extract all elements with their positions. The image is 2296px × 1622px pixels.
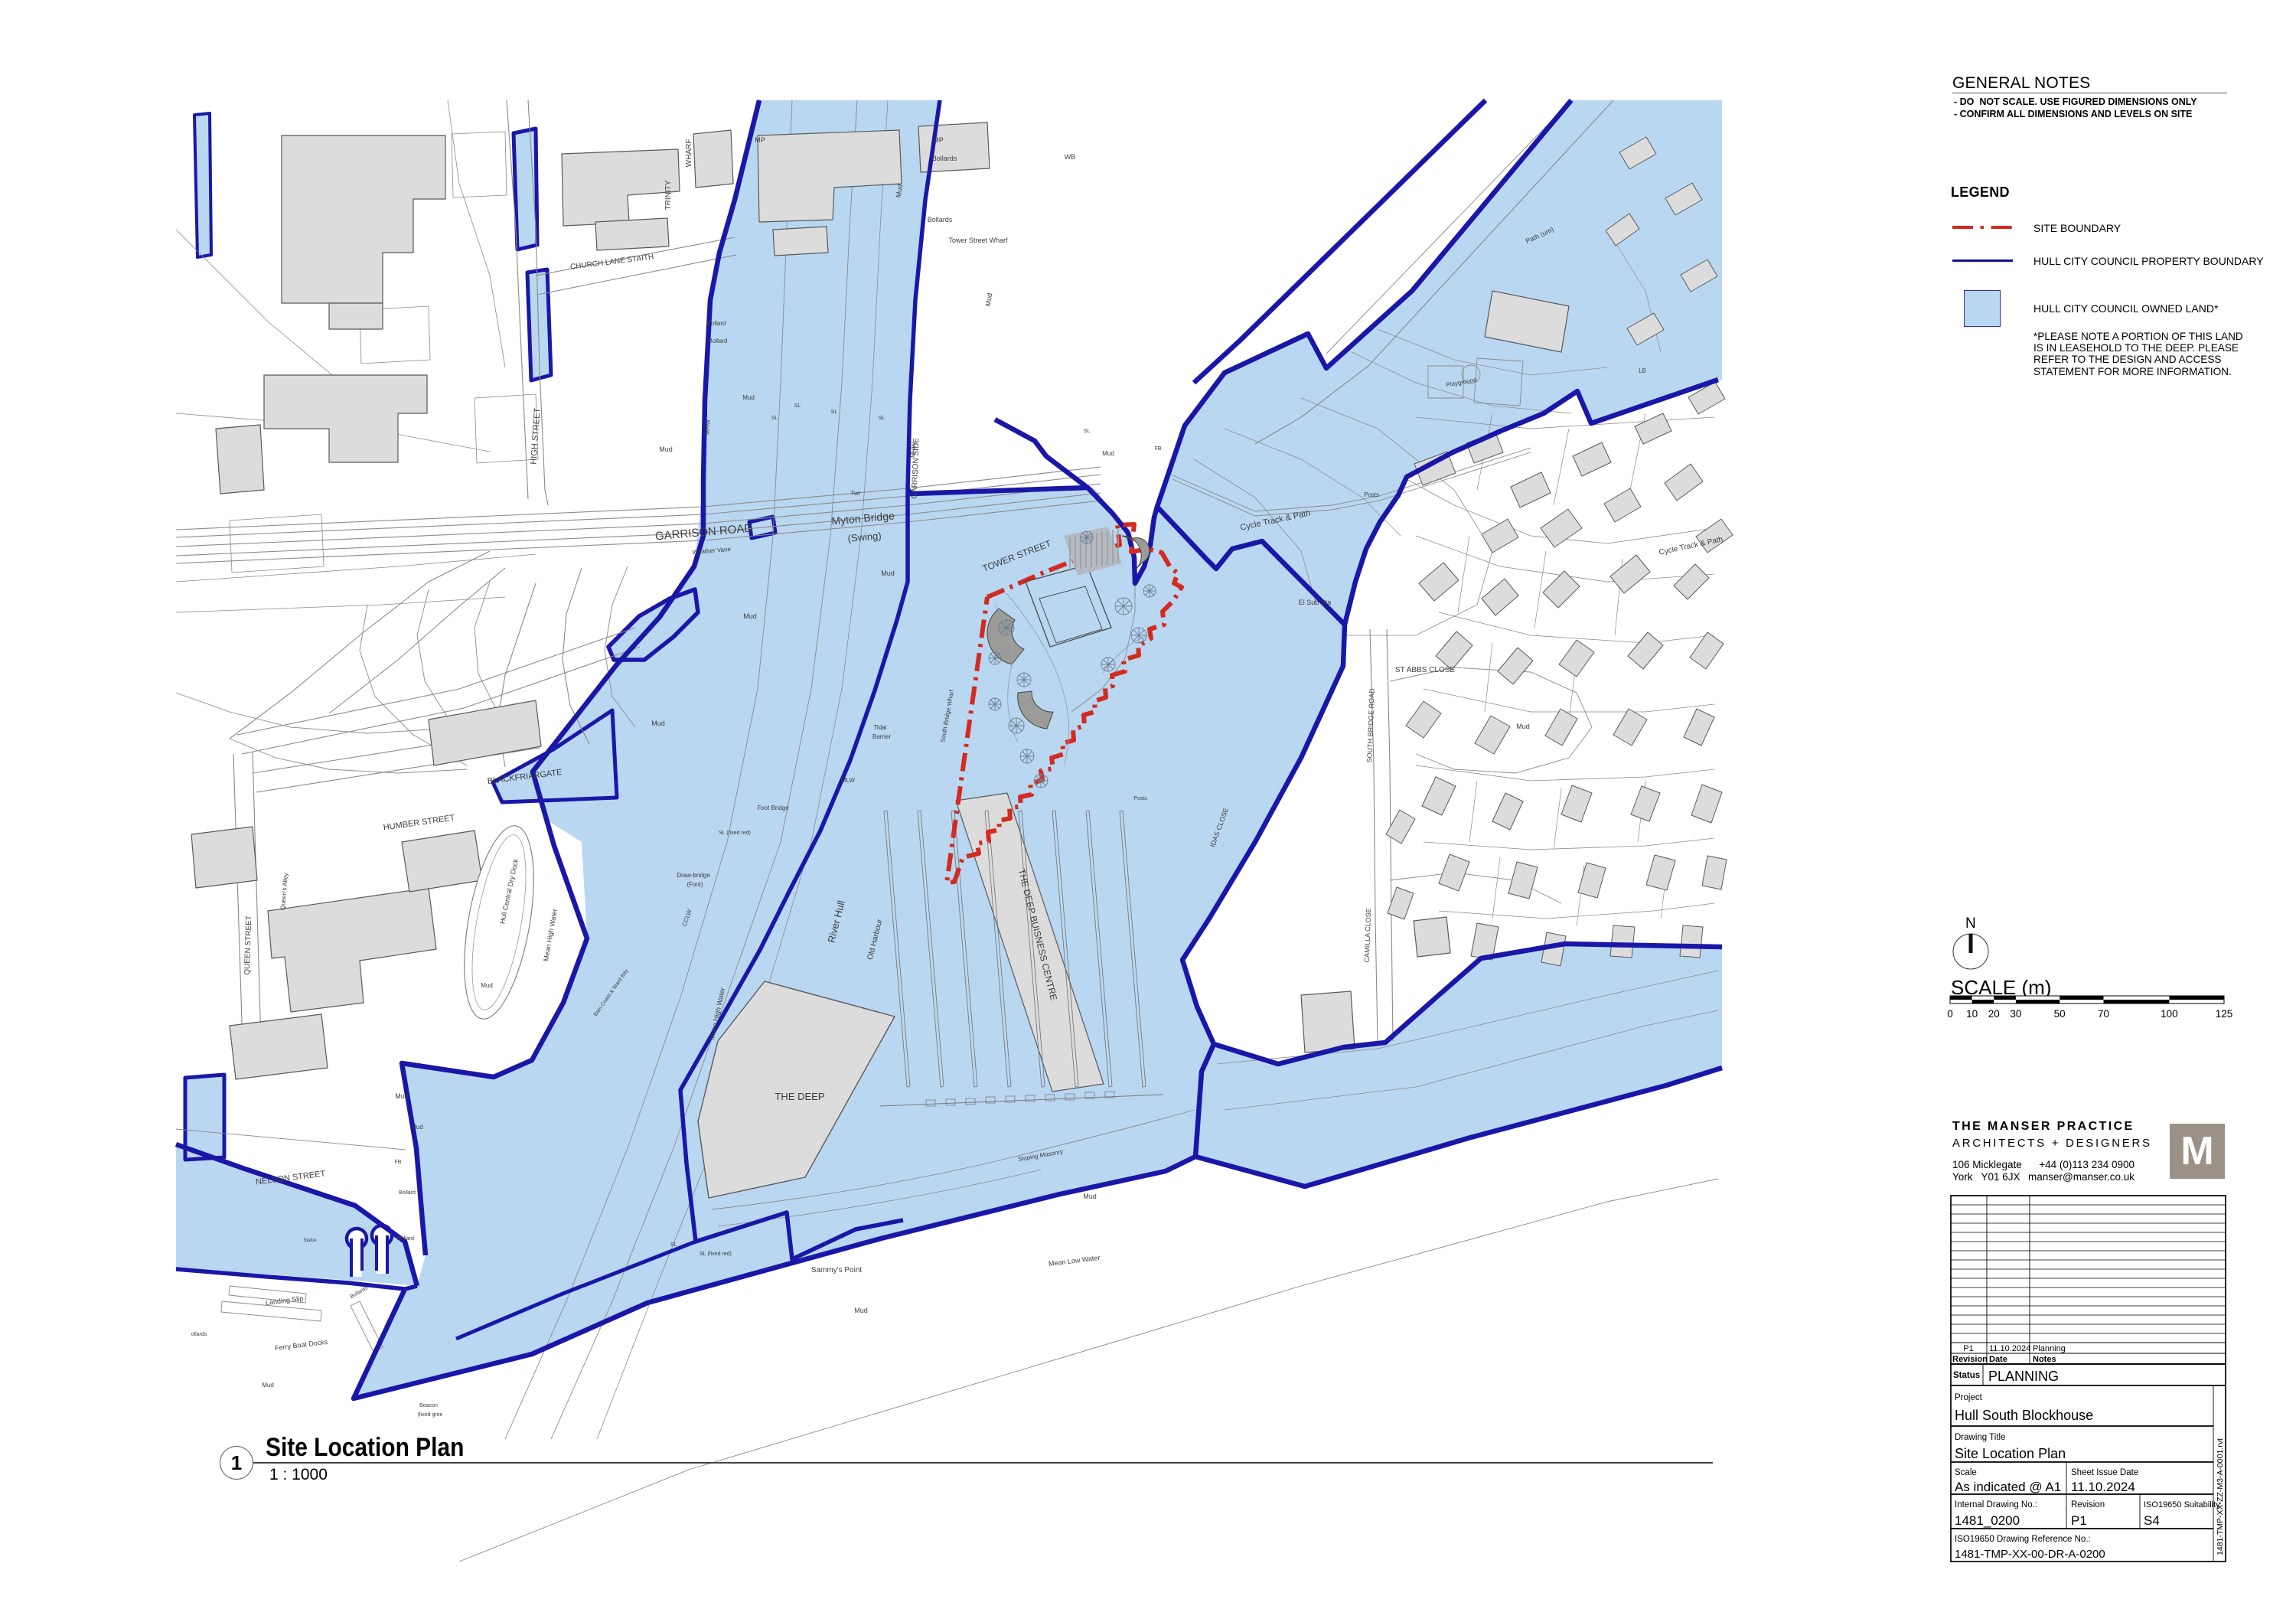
- svg-text:Mud: Mud: [742, 394, 755, 401]
- svg-text:FB: FB: [1155, 446, 1162, 452]
- svg-text:Project: Project: [1955, 1393, 1983, 1402]
- svg-text:WHARF: WHARF: [685, 139, 693, 168]
- svg-text:SL: SL: [1084, 429, 1091, 434]
- svg-text:SL: SL: [670, 1242, 677, 1248]
- svg-text:Site Location Plan: Site Location Plan: [1955, 1446, 2066, 1461]
- svg-text:Hull South Blockhouse: Hull South Blockhouse: [1955, 1408, 2093, 1423]
- svg-text:Mud: Mud: [854, 1307, 868, 1314]
- svg-text:Draw-bridge: Draw-bridge: [677, 872, 710, 879]
- svg-text:Sammy's Point: Sammy's Point: [811, 1266, 863, 1274]
- svg-text:As indicated @ A1: As indicated @ A1: [1955, 1480, 2061, 1494]
- svg-text:Planning: Planning: [2033, 1344, 2066, 1353]
- svg-text:Mud: Mud: [1083, 1193, 1097, 1200]
- svg-text:(Foot): (Foot): [687, 881, 703, 888]
- svg-text:TRINITY: TRINITY: [664, 180, 673, 210]
- svg-text:Bollard: Bollard: [707, 320, 726, 327]
- svg-text:Bollards: Bollards: [932, 155, 957, 162]
- svg-text:Bollard: Bollard: [709, 338, 728, 344]
- svg-text:P1: P1: [2071, 1513, 2087, 1528]
- svg-text:Bollards: Bollards: [928, 216, 953, 224]
- svg-text:Beacon: Beacon: [419, 1403, 438, 1408]
- svg-text:N: N: [1965, 915, 1976, 932]
- svg-text:SL: SL: [771, 416, 778, 421]
- svg-text:Internal Drawing No.:: Internal Drawing No.:: [1955, 1500, 2037, 1509]
- svg-text:Revision: Revision: [1952, 1355, 1988, 1364]
- svg-text:Mud: Mud: [743, 612, 757, 620]
- svg-text:Tower Street Wharf: Tower Street Wharf: [948, 237, 1008, 244]
- svg-text:1: 1: [231, 1451, 242, 1474]
- svg-text:100: 100: [2161, 1008, 2178, 1020]
- svg-text:THE DEEP: THE DEEP: [775, 1091, 824, 1102]
- svg-text:SL (fixed red): SL (fixed red): [719, 831, 751, 836]
- svg-text:Revision: Revision: [2071, 1500, 2105, 1509]
- svg-text:MHW: MHW: [909, 442, 917, 458]
- svg-text:Twr: Twr: [851, 490, 861, 497]
- svg-text:El Sub Sta: El Sub Sta: [1299, 599, 1332, 606]
- svg-text:Mud: Mud: [411, 1124, 423, 1131]
- svg-text:1481_0200: 1481_0200: [1955, 1513, 2020, 1528]
- svg-text:Mud: Mud: [659, 445, 673, 453]
- svg-text:Sheet Issue Date: Sheet Issue Date: [2071, 1468, 2138, 1477]
- svg-text:SL: SL: [831, 410, 838, 415]
- svg-text:FB: FB: [395, 1160, 402, 1165]
- svg-text:Tidal: Tidal: [873, 724, 886, 731]
- svg-text:Barrier: Barrier: [872, 733, 891, 740]
- svg-text:10: 10: [1966, 1008, 1978, 1020]
- svg-text:Scale: Scale: [1955, 1468, 1977, 1477]
- svg-text:11.10.2024: 11.10.2024: [1989, 1344, 2030, 1353]
- svg-text:MP: MP: [755, 136, 765, 144]
- svg-text:Mud: Mud: [881, 569, 895, 577]
- svg-text:SL: SL: [879, 416, 885, 421]
- svg-text:20: 20: [1988, 1008, 2000, 1020]
- svg-text:1481-TMP-XX-ZZ-M3-A-0001.rvt: 1481-TMP-XX-ZZ-M3-A-0001.rvt: [2216, 1438, 2225, 1555]
- svg-text:ISO19650 Suitability: ISO19650 Suitability: [2144, 1500, 2220, 1509]
- svg-text:0: 0: [1947, 1008, 1953, 1020]
- svg-text:S4: S4: [2144, 1513, 2160, 1528]
- svg-text:P1: P1: [1963, 1344, 1973, 1353]
- svg-text:Mud: Mud: [481, 982, 493, 989]
- svg-text:LB: LB: [1639, 367, 1646, 374]
- svg-text:Drawing Title: Drawing Title: [1955, 1433, 2005, 1442]
- svg-text:Mud: Mud: [1102, 450, 1114, 457]
- svg-text:MHW: MHW: [703, 419, 711, 435]
- svg-text:SL: SL: [794, 403, 801, 409]
- svg-text:ST ABBS CLOSE: ST ABBS CLOSE: [1395, 666, 1456, 674]
- svg-text:Bollard: Bollard: [399, 1190, 416, 1196]
- svg-text:11.10.2024: 11.10.2024: [2071, 1480, 2135, 1494]
- svg-text:Foot Bridge: Foot Bridge: [757, 804, 789, 811]
- svg-text:(fixed gree: (fixed gree: [417, 1412, 442, 1418]
- svg-text:Mud: Mud: [395, 1092, 409, 1100]
- svg-text:Notes: Notes: [2033, 1355, 2056, 1364]
- svg-text:ISO19650 Drawing Reference No.: ISO19650 Drawing Reference No.:: [1955, 1535, 2091, 1544]
- svg-text:Bollard: Bollard: [397, 1236, 414, 1242]
- svg-text:1481-TMP-XX-00-DR-A-0200: 1481-TMP-XX-00-DR-A-0200: [1955, 1548, 2105, 1561]
- svg-text:125: 125: [2216, 1008, 2233, 1020]
- svg-text:Mud: Mud: [1516, 723, 1530, 730]
- svg-text:ollards: ollards: [191, 1332, 207, 1337]
- svg-text:Date: Date: [1989, 1355, 2007, 1364]
- svg-text:Posts: Posts: [1133, 796, 1147, 801]
- svg-text:70: 70: [2098, 1008, 2109, 1020]
- svg-text:Statue: Statue: [303, 1239, 317, 1243]
- svg-text:50: 50: [2054, 1008, 2066, 1020]
- svg-text:PLANNING: PLANNING: [1988, 1369, 2059, 1384]
- svg-text:MP: MP: [933, 136, 944, 144]
- svg-text:30: 30: [2010, 1008, 2021, 1020]
- svg-text:WB: WB: [1065, 153, 1076, 161]
- svg-text:SL (fixed red): SL (fixed red): [700, 1252, 732, 1257]
- svg-text:Mud: Mud: [262, 1382, 274, 1389]
- svg-text:Status: Status: [1953, 1371, 1980, 1380]
- svg-text:Posts: Posts: [1364, 491, 1379, 498]
- svg-text:Mud: Mud: [651, 720, 665, 727]
- svg-text:MLW: MLW: [841, 777, 856, 784]
- svg-text:Mud: Mud: [984, 292, 994, 307]
